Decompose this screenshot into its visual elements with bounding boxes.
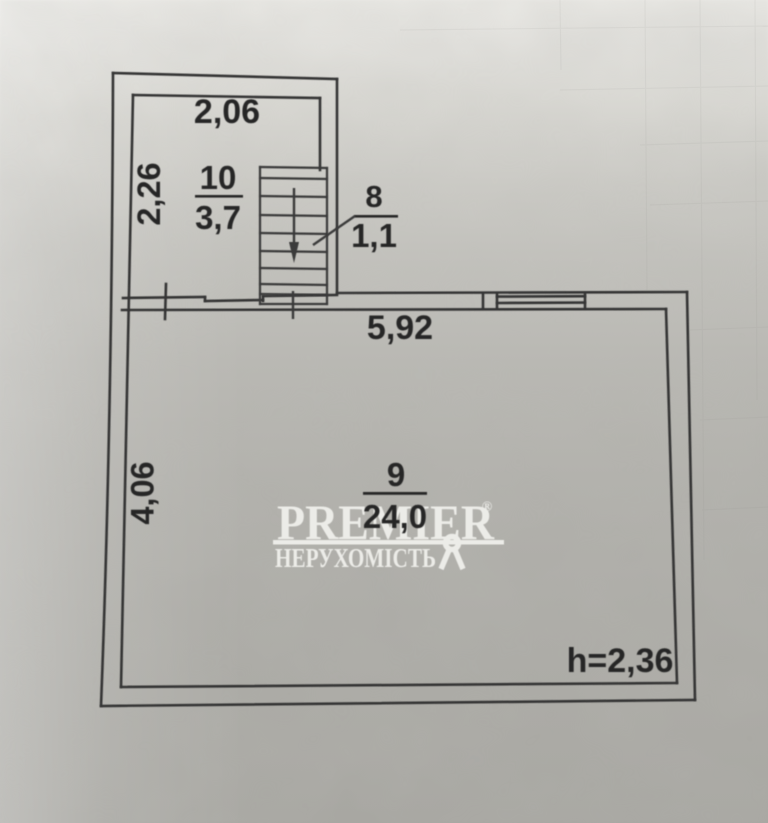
svg-text:®: ® (482, 500, 493, 515)
svg-text:3,7: 3,7 (195, 199, 241, 236)
svg-text:4,06: 4,06 (125, 461, 161, 524)
svg-text:2,26: 2,26 (131, 162, 167, 225)
svg-text:5,92: 5,92 (367, 309, 433, 347)
svg-text:2,06: 2,06 (194, 93, 260, 131)
svg-text:НЕРУХОМІСТЬ: НЕРУХОМІСТЬ (275, 543, 436, 573)
svg-text:24,0: 24,0 (363, 498, 427, 535)
svg-text:9: 9 (387, 456, 405, 493)
svg-text:10: 10 (200, 159, 237, 196)
svg-text:h=2,36: h=2,36 (567, 642, 674, 680)
svg-text:8: 8 (365, 179, 382, 214)
svg-text:1,1: 1,1 (351, 217, 397, 254)
